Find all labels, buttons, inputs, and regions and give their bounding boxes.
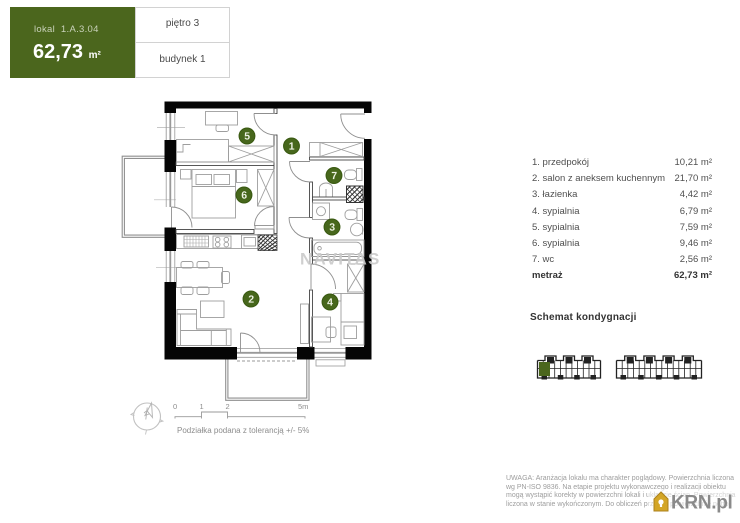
- svg-text:1: 1: [200, 402, 204, 411]
- svg-text:5m: 5m: [298, 402, 308, 411]
- svg-text:NAVITAS: NAVITAS: [300, 250, 381, 269]
- svg-text:2: 2: [226, 402, 230, 411]
- svg-text:0: 0: [173, 402, 177, 411]
- svg-text:KRN.pl: KRN.pl: [671, 493, 733, 514]
